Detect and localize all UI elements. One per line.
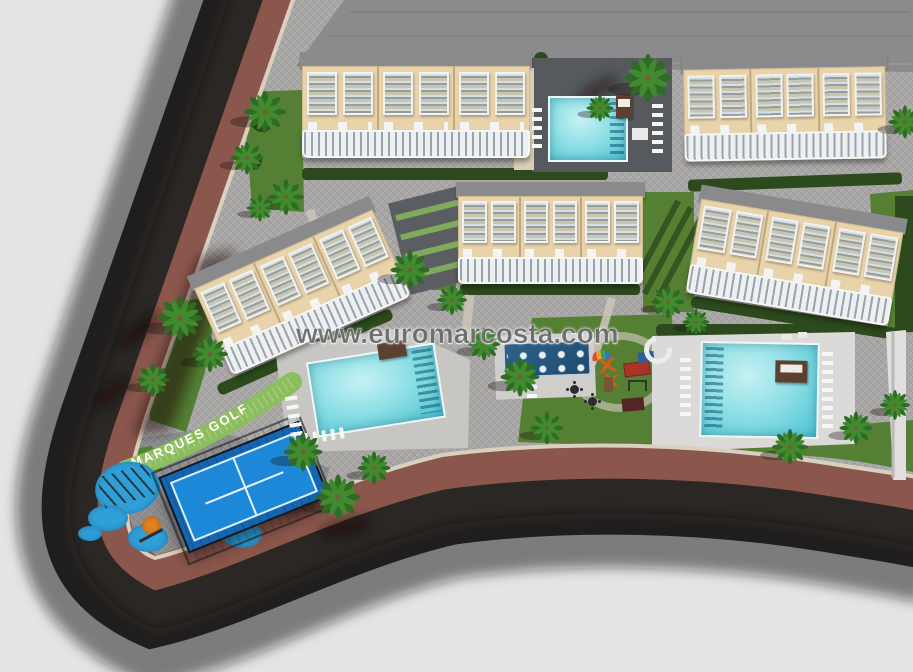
rooftop-pergolas: [755, 73, 815, 117]
rooftop-pergolas: [459, 72, 526, 115]
balcony-railing: [458, 257, 643, 284]
daybed-mat: [618, 99, 629, 107]
watermark: www.euromarcosta.com: [296, 318, 616, 350]
residential-block-top-right: [683, 66, 887, 162]
aerial-site-plan-render: MARQUES GOLF: [0, 0, 913, 672]
rooftop-pergolas: [688, 74, 748, 118]
pergola-slats: [383, 72, 414, 115]
pool-daybed: [775, 360, 807, 383]
rooftop-pergolas: [832, 228, 898, 282]
balcony-railing: [684, 130, 886, 161]
rooftop-units: [587, 249, 638, 257]
play-surface-circle: [78, 526, 102, 541]
pool-steps: [411, 348, 441, 414]
pergola-slats: [697, 205, 731, 254]
balcony-railing: [302, 130, 530, 158]
play-mat: [621, 397, 644, 412]
deck-table: [782, 334, 792, 340]
rooftop-units: [460, 122, 524, 130]
rooftop-units: [525, 249, 576, 257]
pergola-slats: [491, 201, 516, 242]
sun-loungers: [532, 108, 542, 150]
pergola-slats: [524, 201, 549, 242]
rooftop-pergolas: [585, 201, 639, 242]
sun-loungers: [822, 352, 833, 430]
daybed-mat: [780, 365, 803, 373]
pergola-slats: [307, 72, 338, 115]
bench: [604, 377, 613, 392]
sun-loungers: [527, 376, 537, 398]
residential-block-mid-center: [458, 196, 643, 284]
pergola-slats: [864, 233, 898, 282]
rooftop-units: [384, 122, 448, 130]
outdoor-table-set: [570, 385, 579, 394]
pergola-slats: [822, 72, 850, 116]
pergola-slats: [765, 216, 799, 265]
rooftop-pergolas: [697, 205, 763, 259]
pergola-slats: [585, 201, 610, 242]
deck-table: [798, 332, 807, 338]
pergola-slats: [796, 222, 830, 271]
pergola-slats: [854, 72, 882, 116]
outdoor-table-set: [588, 397, 597, 406]
pergola-slats: [719, 74, 747, 118]
rooftop-pergolas: [765, 216, 831, 270]
sun-loungers: [680, 358, 691, 420]
swing-frame: [628, 380, 647, 391]
rooftop-units: [463, 249, 514, 257]
pergola-slats: [787, 73, 815, 117]
rooftop-units: [308, 122, 372, 130]
pergola-slats: [459, 72, 490, 115]
pergola-slats: [343, 72, 374, 115]
pool-steps: [704, 347, 723, 429]
pergola-slats: [553, 201, 578, 242]
rooftop-pergolas: [307, 72, 374, 115]
residential-block-top-left: [302, 66, 530, 158]
sun-loungers: [652, 104, 663, 156]
rooftop-pergolas: [462, 201, 516, 242]
pool-daybed: [616, 94, 632, 118]
swimming-pool-right: [699, 341, 820, 439]
pergola-slats: [729, 210, 763, 259]
pergola-slats: [755, 74, 783, 118]
rooftop-pergolas: [524, 201, 578, 242]
pergola-slats: [614, 201, 639, 242]
pergola-slats: [462, 201, 487, 242]
pergola-slats: [832, 228, 866, 277]
rooftop-pergolas: [822, 72, 882, 116]
pool-mat: [632, 128, 648, 140]
pergola-slats: [495, 72, 526, 115]
rooftop-pergolas: [383, 72, 450, 115]
pergola-slats: [688, 75, 716, 119]
pergola-slats: [419, 72, 450, 115]
